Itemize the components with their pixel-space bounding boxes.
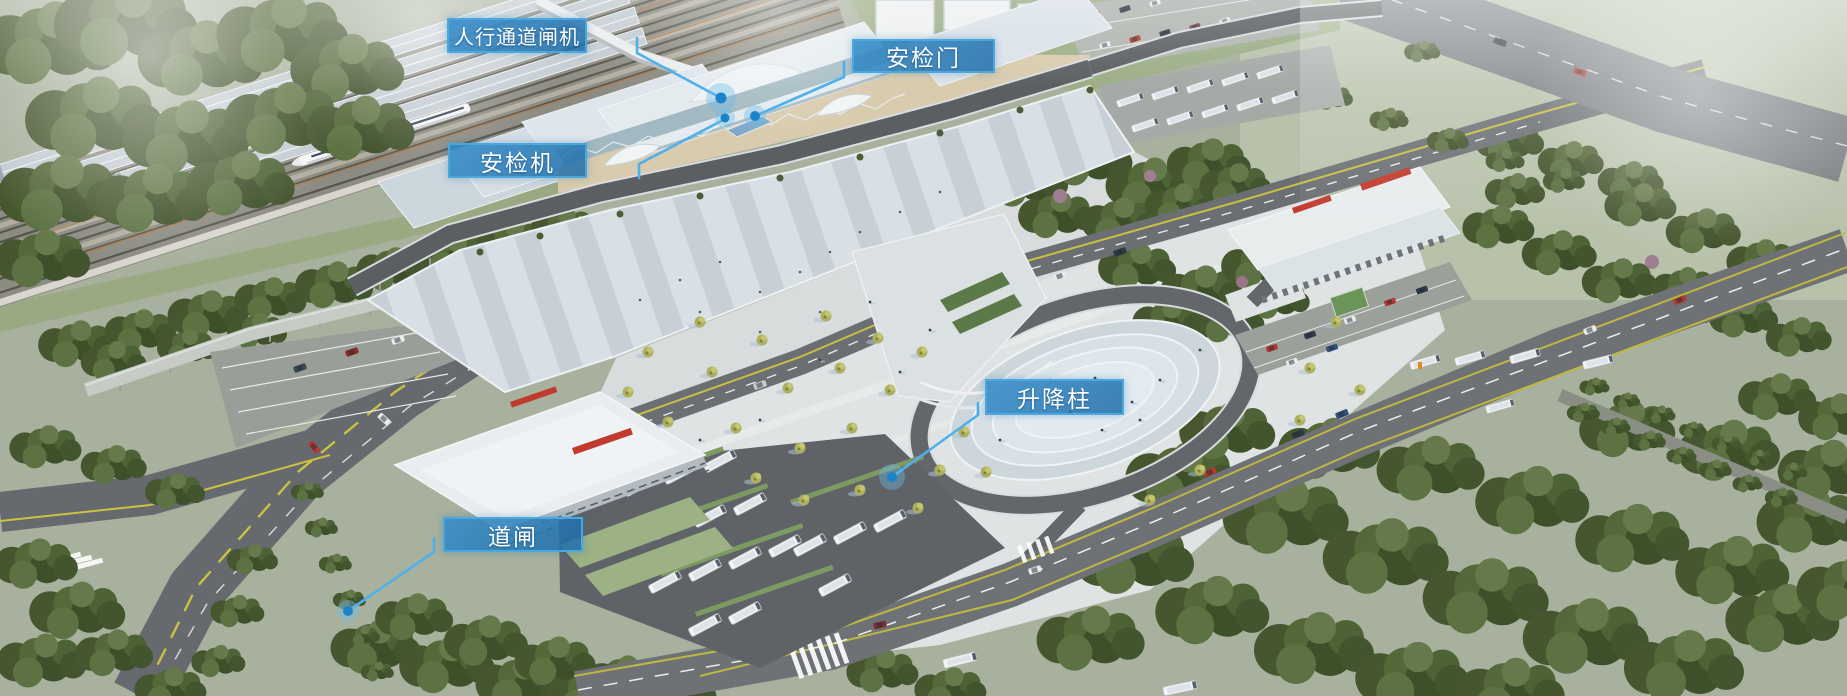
marker-dot-security-scanner bbox=[721, 114, 730, 123]
callout-security-scanner: 安检机 bbox=[448, 143, 587, 178]
callout-label: 安检机 bbox=[480, 144, 555, 178]
callout-lift-bollard: 升降柱 bbox=[985, 379, 1124, 415]
marker-dot-road-barrier bbox=[343, 606, 353, 616]
callout-security-door: 安检门 bbox=[852, 39, 995, 73]
marker-dot-pedestrian-gates bbox=[716, 93, 727, 104]
marker-dot-security-door bbox=[750, 111, 760, 121]
barrier-gate-east bbox=[1418, 362, 1422, 369]
marker-dot-lift-bollard bbox=[887, 472, 897, 482]
callout-pedestrian-gates: 人行通道闸机 bbox=[447, 18, 587, 53]
callout-label: 人行通道闸机 bbox=[454, 21, 580, 50]
callout-label: 升降柱 bbox=[1017, 380, 1092, 414]
station-aerial-annotated-rendering: 人行通道闸机 安检门 安检机 升降柱 道闸 bbox=[0, 0, 1847, 696]
callout-label: 道闸 bbox=[488, 518, 538, 552]
callout-road-barrier: 道闸 bbox=[443, 517, 583, 552]
callout-label: 安检门 bbox=[886, 39, 961, 73]
aerial-scene bbox=[0, 0, 1847, 696]
